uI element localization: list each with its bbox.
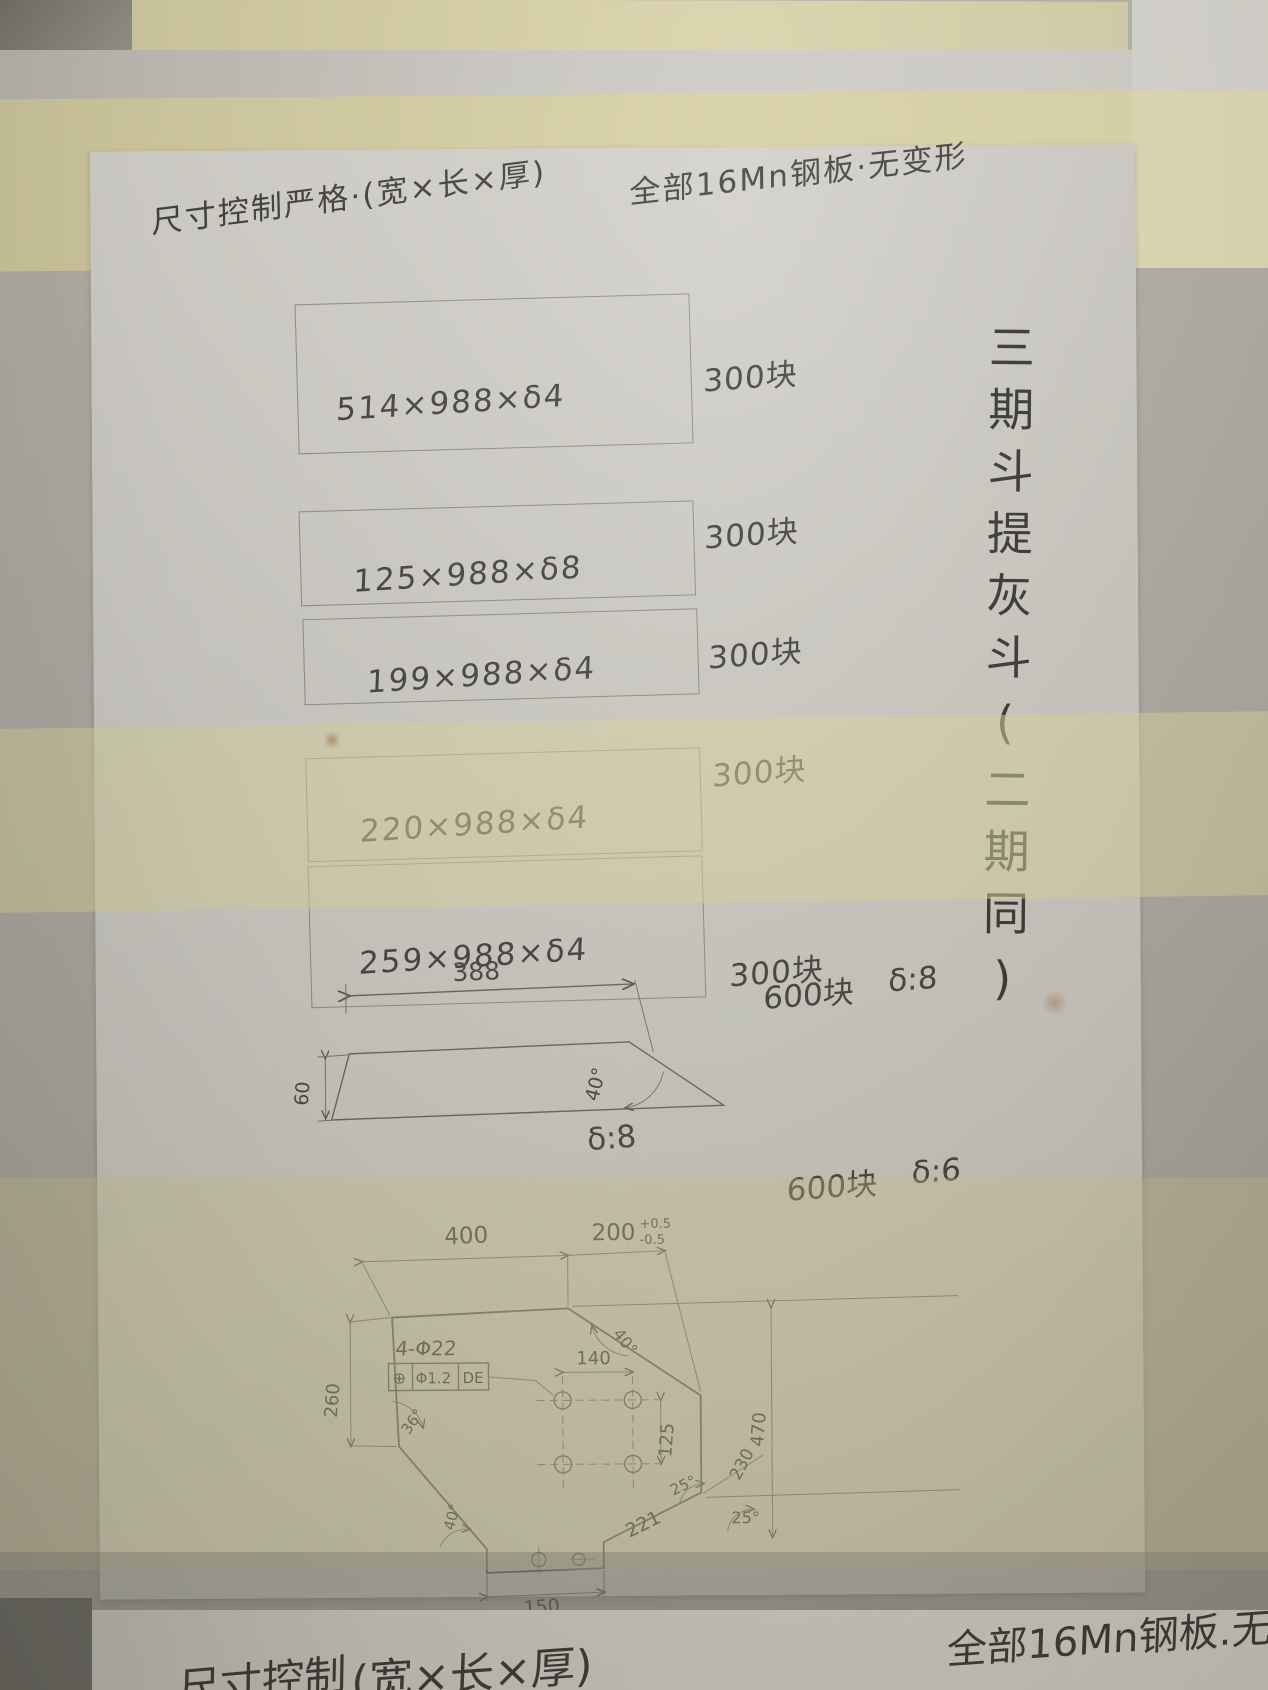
plate-size-label: 514×988×δ4 xyxy=(335,378,566,428)
strip-count: 600块 xyxy=(763,966,855,1018)
strip-outline xyxy=(331,1041,724,1120)
stain-spot xyxy=(322,732,342,748)
next-sheet-edge: 尺寸控制 (宽×长×厚) 全部16Mn钢板.无变形 xyxy=(0,1610,1268,1690)
tape-band-middle xyxy=(0,711,1268,913)
plate-count: 300块 xyxy=(703,348,799,400)
next-sheet-fragment-mid: (宽×长×厚) xyxy=(350,1630,593,1690)
wall-corner-bottom-left xyxy=(0,1598,92,1690)
tape-patch-top-right xyxy=(1132,92,1268,268)
next-sheet-fragment-right: 全部16Mn钢板.无变形 xyxy=(946,1610,1268,1676)
tape-tint-lower xyxy=(0,1178,1268,1570)
plate-size-label: 199×988×δ4 xyxy=(366,650,597,700)
strip-count-thickness: δ:8 xyxy=(888,960,939,1009)
bevel-strip-sketch: 388 40° 60 δ:8 xyxy=(291,955,823,1179)
plate-rect: 125×988×δ8 xyxy=(299,500,696,606)
dim-60: 60 xyxy=(291,1081,315,1107)
wall-band-bottom xyxy=(0,1552,1268,1614)
sheet-title-left: 尺寸控制严格·(宽×长×厚) xyxy=(151,147,547,242)
next-sheet-fragment-left: 尺寸控制 xyxy=(177,1641,347,1690)
stain-spot xyxy=(1040,992,1070,1014)
plate-rect: 199×988×δ4 xyxy=(302,608,699,705)
plate-rect: 514×988×δ4 xyxy=(295,293,694,454)
plate-count: 300块 xyxy=(704,505,800,557)
angle-40: 40° xyxy=(581,1065,611,1103)
paper-edge-top-right xyxy=(1132,0,1268,96)
plate-count: 300块 xyxy=(708,625,804,677)
plate-size-label: 125×988×δ8 xyxy=(352,549,583,599)
dim-388: 388 xyxy=(452,956,501,987)
